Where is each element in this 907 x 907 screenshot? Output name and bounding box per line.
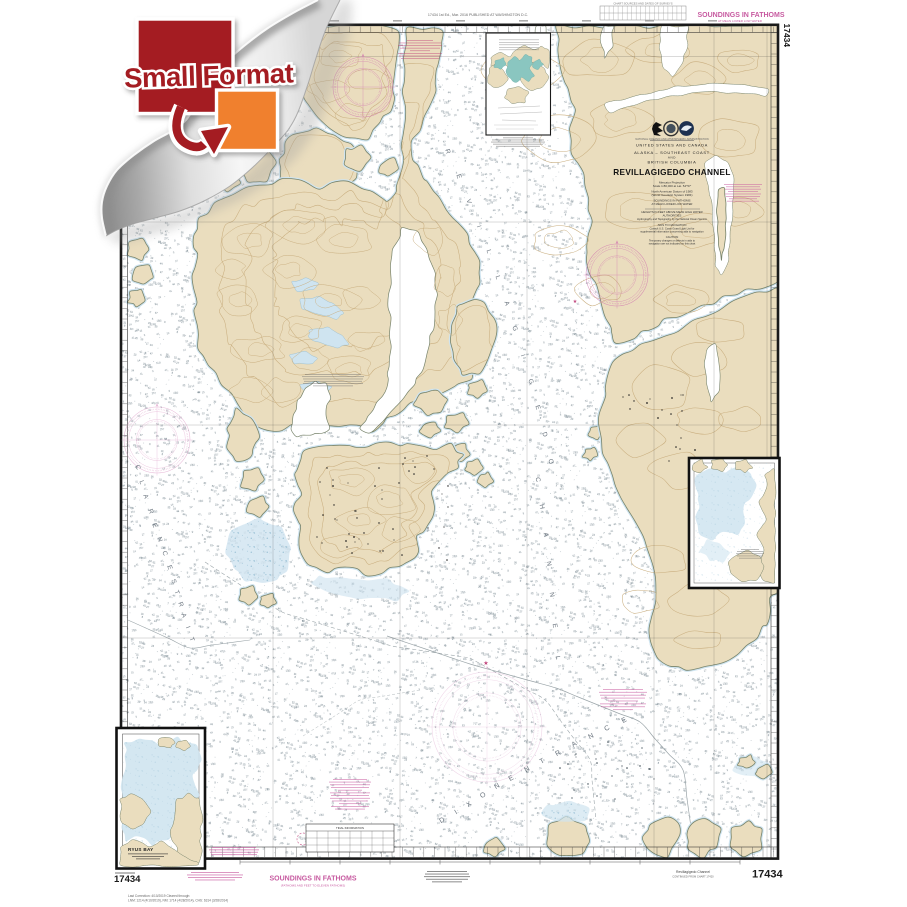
svg-text:AT MEAN LOWER LOW WATER: AT MEAN LOWER LOW WATER <box>652 202 693 206</box>
svg-text:AT MEAN LOWER LOW WATER: AT MEAN LOWER LOW WATER <box>718 19 763 23</box>
svg-text:(FATHOMS AND FEET TO ELEVEN FA: (FATHOMS AND FEET TO ELEVEN FATHOMS) <box>281 884 345 888</box>
svg-text:SOUNDINGS IN FATHOMS: SOUNDINGS IN FATHOMS <box>698 12 785 19</box>
svg-text:CAUTION: CAUTION <box>666 235 679 239</box>
svg-text:ALASKA – SOUTHEAST COAST: ALASKA – SOUTHEAST COAST <box>634 150 710 155</box>
svg-text:Hydrography and Topography by: Hydrography and Topography by the Nation… <box>637 217 707 221</box>
svg-text:RYUS BAY: RYUS BAY <box>128 847 154 852</box>
svg-text:UNITED STATES AND CANADA: UNITED STATES AND CANADA <box>636 144 708 148</box>
svg-text:LNM: 1214 (4/10/2019), NM: 171: LNM: 1214 (4/10/2019), NM: 1714 (4/28/20… <box>128 899 228 903</box>
svg-text:Small Format: Small Format <box>124 57 295 93</box>
svg-text:SOUNDINGS IN FATHOMS: SOUNDINGS IN FATHOMS <box>270 876 357 883</box>
svg-text:17434 1st Ed., Mar. 2016 P: 17434 1st Ed., Mar. 2016 PUBLISHED AT WA… <box>428 13 528 17</box>
svg-text:(World Geodetic System 1984): (World Geodetic System 1984) <box>652 193 693 197</box>
svg-text:★: ★ <box>573 299 578 305</box>
svg-text:AUTHORITIES: AUTHORITIES <box>663 214 682 218</box>
svg-text:TIDAL INFORMATION: TIDAL INFORMATION <box>336 826 364 830</box>
svg-text:★: ★ <box>483 660 488 667</box>
svg-text:CHART SOURCES AND DATES OF SUR: CHART SOURCES AND DATES OF SURVEYS <box>613 2 672 6</box>
svg-text:Last Correction: 4/10/2019 C: Last Correction: 4/10/2019 Cleared throu… <box>128 894 190 898</box>
svg-text:BRITISH COLUMBIA: BRITISH COLUMBIA <box>648 160 697 165</box>
svg-text:supplemental information conce: supplemental information concerning aids… <box>640 230 704 234</box>
svg-text:Scale 1:80,000 at Lat. 54°57': Scale 1:80,000 at Lat. 54°57' <box>653 184 692 188</box>
svg-text:navigation are not indicated o: navigation are not indicated on this cha… <box>649 242 696 246</box>
svg-text:17434: 17434 <box>782 24 792 48</box>
svg-text:NATIONAL OCEANIC AND ATMOSPHER: NATIONAL OCEANIC AND ATMOSPHERIC ADMINIS… <box>635 137 708 141</box>
svg-text:Revillagigedo Channel: Revillagigedo Channel <box>676 870 710 874</box>
svg-text:REVILLAGIGEDO CHANNEL: REVILLAGIGEDO CHANNEL <box>613 168 730 177</box>
svg-text:CONTINUED FROM CHART 17420: CONTINUED FROM CHART 17420 <box>672 875 714 879</box>
svg-text:17434: 17434 <box>114 874 141 885</box>
svg-text:17434: 17434 <box>752 869 783 881</box>
svg-text:AIDS TO NAVIGATION: AIDS TO NAVIGATION <box>658 223 687 227</box>
